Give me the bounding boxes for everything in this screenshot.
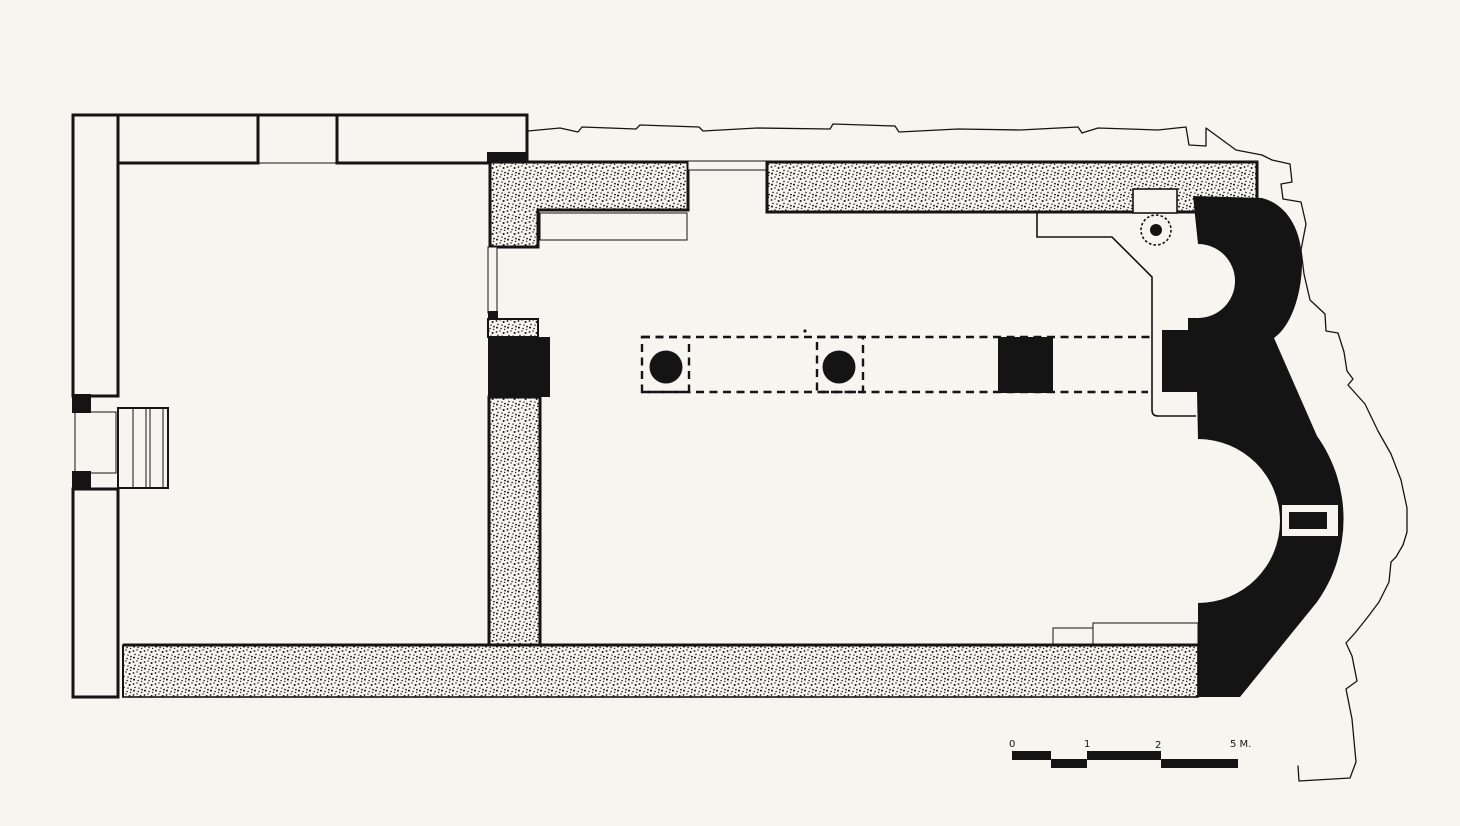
apse-window [1289, 512, 1327, 529]
north-wall-block-a [118, 115, 258, 163]
wall-recess [1133, 189, 1177, 213]
thin-partition [488, 247, 497, 313]
column-base-1 [650, 351, 683, 384]
column-base-dot [1150, 224, 1162, 236]
entrance-steps-box [118, 408, 168, 488]
west-wall-lower [73, 489, 118, 697]
chancel-step-ledge-inner [1093, 623, 1198, 645]
scale-label-1: 1 [1084, 739, 1090, 750]
north-doorway-threshold [688, 161, 767, 170]
west-pier [488, 337, 550, 397]
west-wall-upper [73, 115, 118, 396]
scale-bar-segment [1161, 759, 1238, 768]
scale-label-0: 0 [1009, 739, 1015, 750]
north-wall-east-stipple [767, 162, 1257, 212]
east-pier [998, 337, 1053, 393]
scale-label-2: 2 [1155, 740, 1161, 751]
partition-stipple [488, 319, 538, 337]
west-door-jamb-south [72, 471, 91, 489]
stray-mark [803, 329, 806, 332]
south-wall-stipple-band [123, 645, 1198, 697]
west-doorway-reveal [75, 412, 116, 473]
partition-block [488, 311, 498, 319]
scale-bar-segment [1051, 759, 1087, 768]
wall-bench [540, 213, 687, 240]
cross-wall [489, 397, 540, 645]
column-base-2 [823, 351, 856, 384]
west-door-jamb-north [72, 394, 91, 413]
scale-bar-segment [1087, 751, 1161, 760]
scale-label-5m: 5 M. [1230, 739, 1251, 750]
floor-plan-svg: 0 1 2 5 M. [0, 0, 1460, 826]
plan-page: 0 1 2 5 M. [0, 0, 1460, 826]
scale-bar-segment [1012, 751, 1051, 760]
